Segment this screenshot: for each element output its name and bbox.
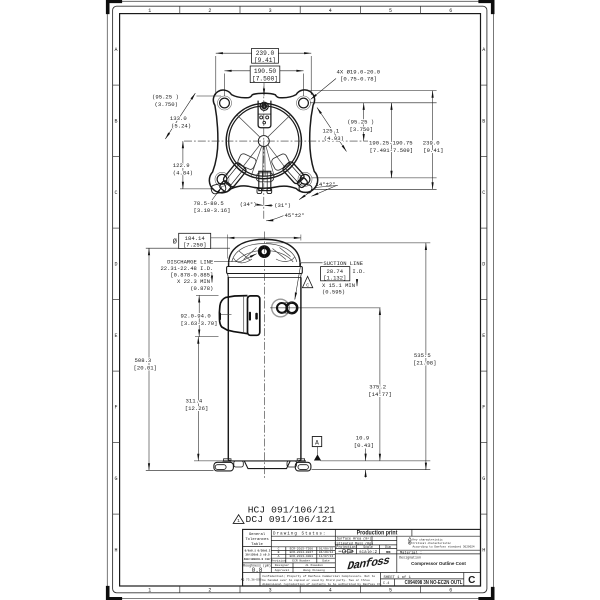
svg-text:239.0: 239.0 xyxy=(423,140,440,147)
svg-text:Drawing Status:: Drawing Status: xyxy=(273,531,326,536)
svg-text:ECR-2014-0227: ECR-2014-0227 xyxy=(290,551,314,554)
svg-text:5: 5 xyxy=(389,8,392,14)
svg-text:Critical characteristic: Critical characteristic xyxy=(413,541,452,545)
svg-text:535.5: 535.5 xyxy=(414,352,431,359)
svg-text:Wang Xinsong: Wang Xinsong xyxy=(303,568,325,572)
svg-text:D: D xyxy=(482,262,485,268)
svg-text:scale:2: scale:2 xyxy=(359,550,377,555)
svg-text:1: 1 xyxy=(237,518,240,524)
svg-text:H: H xyxy=(114,548,117,554)
svg-text:C: C xyxy=(468,575,475,586)
svg-text:B: B xyxy=(482,119,485,125)
svg-text:375.2: 375.2 xyxy=(369,384,386,391)
svg-text:4: 4 xyxy=(329,588,332,594)
svg-text:Approval: Approval xyxy=(275,568,290,572)
svg-text:78.5-80.5: 78.5-80.5 xyxy=(194,200,224,207)
svg-text:Production print: Production print xyxy=(357,530,398,537)
svg-text:According to Danfoss standard: According to Danfoss standard 3620024 xyxy=(413,544,475,548)
svg-text:(5.24): (5.24) xyxy=(171,122,191,129)
svg-text:(95.25 ): (95.25 ) xyxy=(347,119,374,126)
svg-text:(0.595): (0.595) xyxy=(322,288,345,295)
svg-text:4X Ø19.0-20.0: 4X Ø19.0-20.0 xyxy=(337,68,381,75)
svg-text:[20.01]: [20.01] xyxy=(134,364,158,371)
svg-text:Confidential; Property of Danf: Confidential; Property of Danfoss Commer… xyxy=(262,574,375,578)
svg-text:Date: Date xyxy=(322,559,329,562)
svg-text:Designer: Designer xyxy=(275,563,290,567)
svg-text:F: F xyxy=(482,405,485,411)
svg-text:3: 3 xyxy=(269,8,272,14)
svg-text:Table: Table xyxy=(251,542,263,547)
svg-text:[14.77]: [14.77] xyxy=(368,391,392,398)
svg-text:C.4: C.4 xyxy=(383,582,389,586)
svg-text:dimensional reproduction of co: dimensional reproduction of contents to … xyxy=(262,582,382,586)
svg-text:11/07/13: 11/07/13 xyxy=(319,554,334,558)
svg-text:Ø: Ø xyxy=(173,238,177,247)
svg-text:[3.63-3.70]: [3.63-3.70] xyxy=(181,320,218,327)
svg-text:[3.750]: [3.750] xyxy=(350,126,374,133)
svg-text:DCJ 091/106/121: DCJ 091/106/121 xyxy=(246,514,334,525)
svg-text:SUCTION LINE: SUCTION LINE xyxy=(323,260,363,267)
svg-text:[7.491-7.509]: [7.491-7.509] xyxy=(370,147,414,154)
svg-text:92.0-94.0: 92.0-94.0 xyxy=(181,312,212,319)
svg-text:[0.75-0.78]: [0.75-0.78] xyxy=(340,76,377,83)
svg-text:[3.10-3.16]: [3.10-3.16] xyxy=(194,207,231,214)
svg-text:ECR-2015-7266: ECR-2015-7266 xyxy=(290,547,314,550)
svg-text:A: A xyxy=(278,555,280,558)
svg-text:Surface Area (m²): Surface Area (m²) xyxy=(337,537,372,542)
svg-text:[21.08]: [21.08] xyxy=(413,359,437,366)
svg-text:E: E xyxy=(114,333,117,339)
svg-text:2: 2 xyxy=(208,8,211,14)
svg-text:C: C xyxy=(306,282,309,288)
svg-text:A: A xyxy=(482,47,485,53)
svg-text:SHEET 1 of 1: SHEET 1 of 1 xyxy=(384,575,412,580)
svg-text:(0.878): (0.878) xyxy=(190,285,213,292)
svg-text:G: G xyxy=(114,476,117,482)
svg-text:4: 4 xyxy=(329,8,332,14)
svg-text:ECR Number: ECR Number xyxy=(292,558,310,562)
svg-text:04/29/14: 04/29/14 xyxy=(319,550,334,554)
svg-text:mm: mm xyxy=(386,551,391,555)
svg-text:Scale: Scale xyxy=(363,545,373,549)
svg-text:5: 5 xyxy=(389,588,392,594)
svg-text:Revision: Revision xyxy=(271,558,286,562)
svg-text:F: F xyxy=(114,405,117,411)
svg-text:10.9: 10.9 xyxy=(356,435,369,442)
svg-text:[1.132]: [1.132] xyxy=(323,275,346,282)
svg-text:[7.500]: [7.500] xyxy=(252,75,278,82)
svg-text:1: 1 xyxy=(148,8,151,14)
svg-text:D: D xyxy=(114,262,117,268)
svg-text:ECR-2013-4001: ECR-2013-4001 xyxy=(290,555,314,558)
svg-text:Designation: Designation xyxy=(399,555,421,559)
svg-text:190.25-190.75: 190.25-190.75 xyxy=(369,140,413,147)
svg-text:Tolerances: Tolerances xyxy=(245,537,269,542)
svg-text:Projection: Projection xyxy=(336,545,355,549)
svg-text:14°±2°: 14°±2° xyxy=(316,181,336,188)
svg-text:6: 6 xyxy=(449,588,452,594)
svg-text:133.0: 133.0 xyxy=(170,115,187,122)
svg-text:0.8: 0.8 xyxy=(252,567,263,574)
svg-text:(31°): (31°) xyxy=(274,202,291,209)
svg-text:E: E xyxy=(482,333,485,339)
svg-text:Dim: Dim xyxy=(385,545,391,549)
svg-text:I.D.: I.D. xyxy=(352,268,365,275)
svg-text:125.1: 125.1 xyxy=(323,127,340,134)
svg-text:[7.250]: [7.250] xyxy=(183,242,207,249)
svg-text:311.4: 311.4 xyxy=(186,397,203,404)
svg-text:190.50: 190.50 xyxy=(254,68,277,75)
svg-text:C: C xyxy=(482,190,485,196)
svg-text:3: 3 xyxy=(269,588,272,594)
svg-text:(4.93): (4.93) xyxy=(324,135,344,142)
svg-text:Key characteristic: Key characteristic xyxy=(413,537,444,541)
svg-text:B: B xyxy=(114,119,117,125)
svg-text:C094098 3N NO-EC2N OUTL: C094098 3N NO-EC2N OUTL xyxy=(405,580,463,587)
svg-text:General: General xyxy=(249,532,266,537)
svg-text:(3.750): (3.750) xyxy=(155,101,179,108)
svg-text:G: G xyxy=(482,476,485,482)
svg-text:Compressor Outline Cont: Compressor Outline Cont xyxy=(411,561,466,566)
svg-text:H: H xyxy=(482,548,485,554)
svg-text:2: 2 xyxy=(208,588,211,594)
svg-text:B: B xyxy=(278,551,280,554)
svg-text:45°±2°: 45°±2° xyxy=(285,212,305,219)
svg-text:(34°): (34°) xyxy=(240,201,257,208)
svg-text:30/120±0.3 ±0.5: 30/120±0.3 ±0.5 xyxy=(245,553,270,557)
svg-text:A: A xyxy=(315,440,319,447)
svg-text:C: C xyxy=(278,547,280,550)
svg-text:6: 6 xyxy=(449,8,452,14)
svg-text:[9.41]: [9.41] xyxy=(254,57,276,64)
svg-text:122.9: 122.9 xyxy=(173,162,190,169)
svg-text:0/6±0.1 6/30±0.2: 0/6±0.1 6/30±0.2 xyxy=(245,549,271,553)
svg-text:[12.26]: [12.26] xyxy=(185,405,209,412)
svg-text:508.3: 508.3 xyxy=(135,357,152,364)
svg-text:400/1000±0.8 ±30': 400/1000±0.8 ±30' xyxy=(244,557,271,561)
svg-text:1: 1 xyxy=(148,588,151,594)
svg-text:(95.25 ): (95.25 ) xyxy=(152,94,179,101)
svg-text:AQ 73.38-D96: AQ 73.38-D96 xyxy=(241,578,262,581)
svg-text:C: C xyxy=(114,190,117,196)
svg-text:A: A xyxy=(114,47,117,53)
svg-text:[0.43]: [0.43] xyxy=(354,442,374,449)
svg-text:(4.84): (4.84) xyxy=(173,170,193,177)
svg-text:Ji Xiaokun: Ji Xiaokun xyxy=(305,563,323,567)
svg-text:01/08/15: 01/08/15 xyxy=(319,546,334,550)
svg-text:be handed over to copied or us: be handed over to copied or used by thir… xyxy=(262,578,370,582)
svg-text:[9.41]: [9.41] xyxy=(423,147,443,154)
